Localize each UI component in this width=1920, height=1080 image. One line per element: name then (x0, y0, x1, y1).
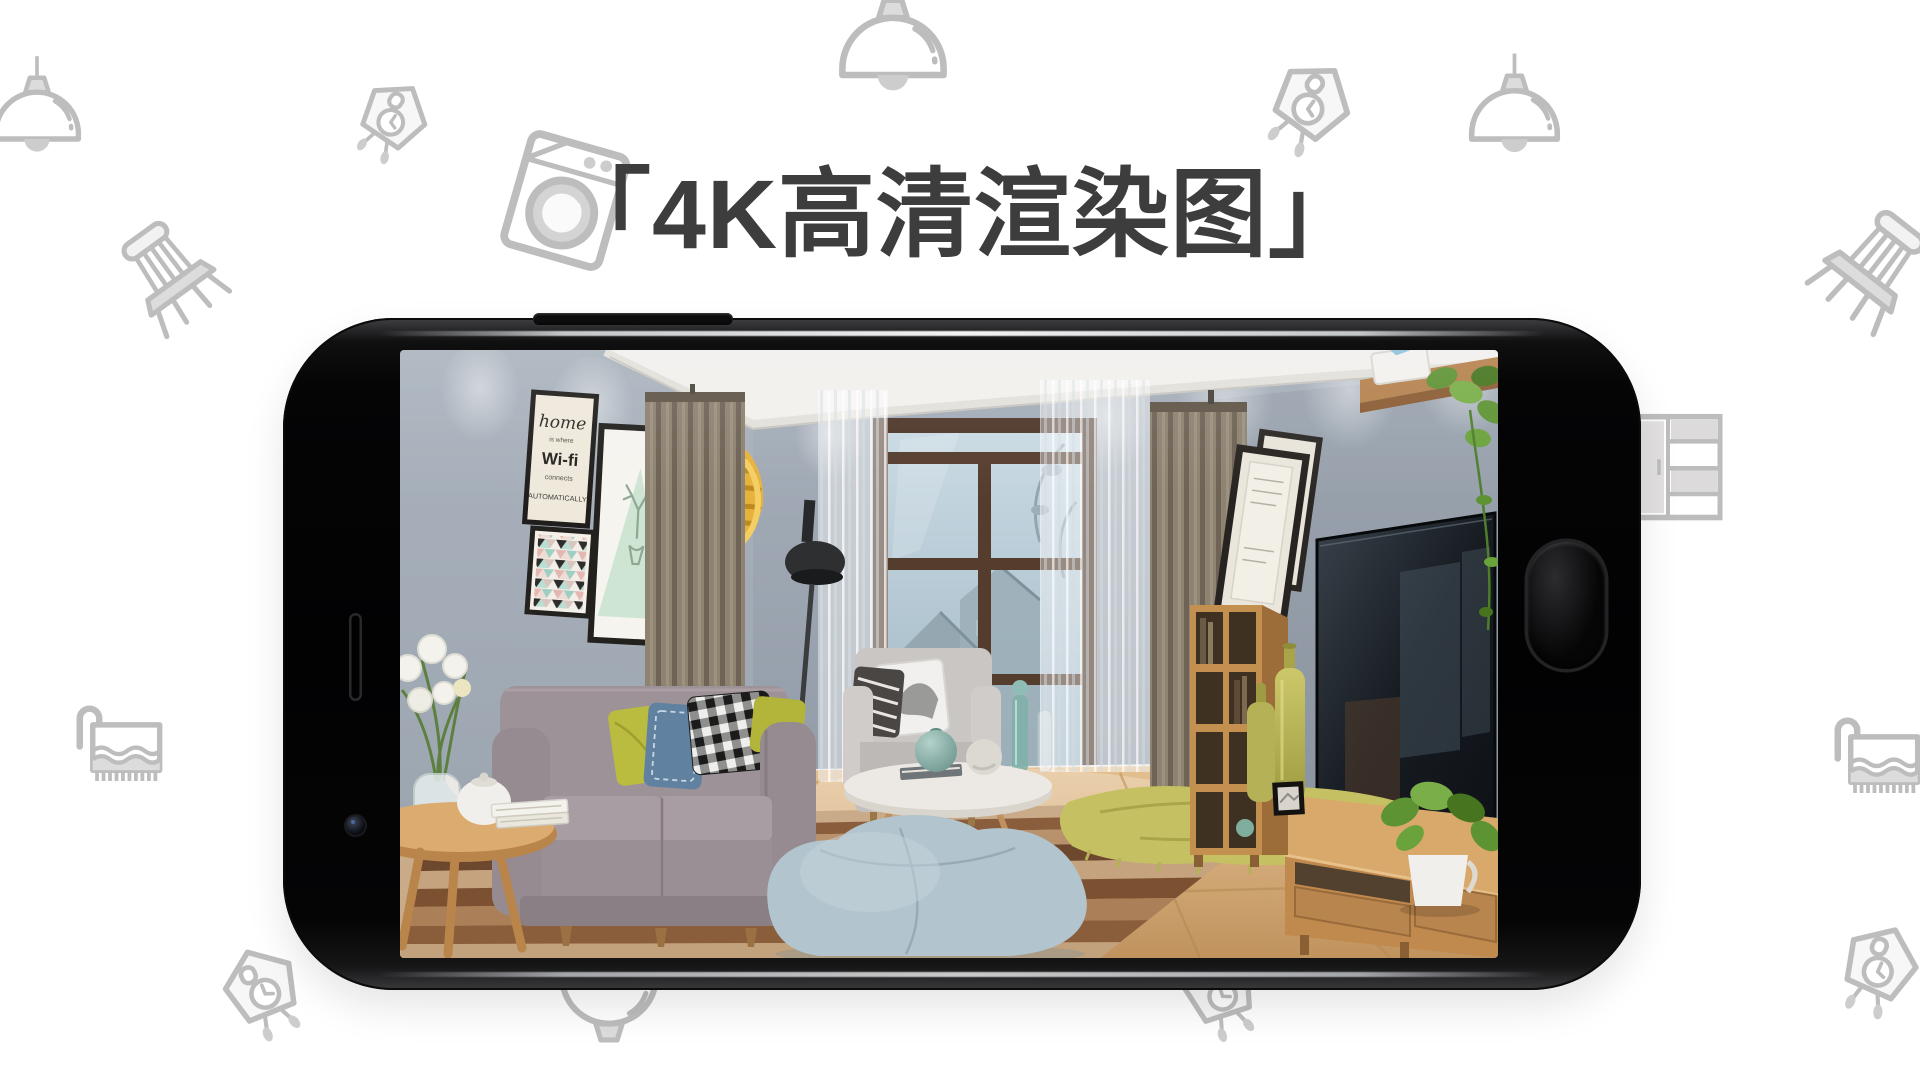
phone-edge-highlight (378, 331, 1546, 336)
screen-glare (400, 350, 1498, 958)
volume-button (533, 313, 733, 325)
page-title: 「4K高清渲染图」 (0, 135, 1920, 276)
cuckoo-clock-icon (1827, 916, 1920, 1027)
phone-edge-highlight (378, 972, 1546, 977)
earpiece-speaker (349, 613, 362, 701)
pendant-lamp-icon (842, 0, 943, 90)
front-camera (346, 816, 365, 835)
living-room-photo: home is where Wi-fi connects AUTOMATICAL… (400, 350, 1498, 958)
smartphone: home is where Wi-fi connects AUTOMATICAL… (283, 318, 1641, 990)
drawer-cabinet-icon (1636, 417, 1720, 518)
towel-rack-icon (80, 709, 160, 781)
cuckoo-clock-icon (216, 940, 313, 1050)
home-button (1528, 542, 1605, 669)
promo-page: 「4K高清渲染图」 (0, 0, 1920, 1080)
phone-screen: home is where Wi-fi connects AUTOMATICAL… (400, 350, 1498, 958)
towel-rack-icon (1838, 721, 1918, 793)
